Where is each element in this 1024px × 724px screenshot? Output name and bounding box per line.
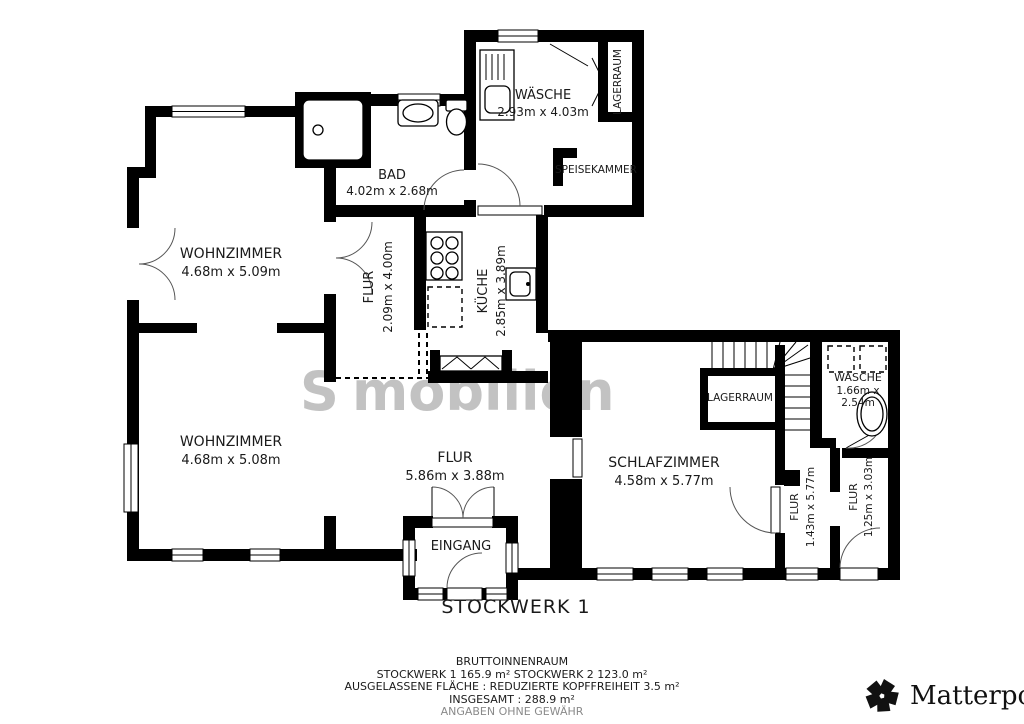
stove (426, 232, 462, 280)
dims-wohnzimmer-1: 4.68m x 5.09m (181, 265, 280, 280)
kitchen-doorway-arc (478, 164, 520, 206)
dims-flur-2: 5.86m x 3.88m (405, 469, 504, 484)
matterport-logo: Matterport® (862, 676, 1024, 716)
laundry-machine-2 (860, 346, 886, 372)
vestibule-door-arc-left (432, 487, 463, 518)
laundry-machine-1 (828, 346, 854, 372)
summary-line-1: BRUTTOINNENRAUM (0, 656, 1024, 669)
floor-title: STOCKWERK 1 (441, 596, 590, 618)
bath-sink (398, 100, 438, 126)
label-eingang: EINGANG (431, 539, 492, 554)
dims-flur-1: 2.09m x 4.00m (381, 241, 395, 333)
label-wohnzimmer-1: WOHNZIMMER (180, 246, 283, 262)
vestibule-door-arc-right (463, 487, 494, 518)
matterport-pinwheel-icon (862, 676, 902, 716)
sliding-door (573, 439, 582, 477)
french-door-arc-top (139, 228, 175, 264)
french-door-arc-bottom (139, 264, 175, 300)
shower (295, 92, 371, 168)
entry-door-arc (447, 553, 482, 588)
dims-flur-3: 1.43m x 5.77m (805, 467, 817, 547)
label-waesche-right: WÄSCHE (834, 371, 882, 384)
label-flur-3: FLUR (788, 493, 801, 521)
bedroom-door-leaf (771, 487, 780, 533)
label-flur-2: FLUR (437, 450, 472, 466)
vestibule-threshold (432, 518, 493, 527)
kitchen-sink (506, 268, 536, 300)
label-waesche-top: WÄSCHE (515, 87, 571, 103)
label-flur-4: FLUR (847, 483, 860, 511)
toilet (446, 100, 467, 135)
label-flur-1: FLUR (362, 271, 377, 304)
kitchen-table (428, 287, 462, 327)
dims-schlafzimmer: 4.58m x 5.77m (614, 474, 713, 489)
hall-door-arc-1 (336, 222, 372, 258)
dims-waesche-right-1: 1.66m x (836, 385, 879, 397)
staircase (712, 342, 810, 430)
label-speisekammer: SPEISEKAMMER (555, 164, 637, 176)
label-bad: BAD (378, 168, 406, 183)
label-lagerraum-mid: LAGERRAUM (707, 392, 773, 404)
dims-flur-4: 1.25m x 3.03m (863, 457, 875, 537)
brand-name: Matterport (910, 681, 1024, 711)
label-kueche: KÜCHE (474, 269, 491, 314)
kitchen-doorway-slab (478, 206, 542, 215)
kitchen-counter (440, 356, 502, 371)
dims-bad: 4.02m x 2.68m (346, 184, 438, 198)
label-wohnzimmer-2: WOHNZIMMER (180, 434, 283, 450)
dims-waesche-top: 2.93m x 4.03m (497, 105, 589, 119)
floorplan-drawing: S mobilien (0, 0, 1024, 724)
dims-waesche-right-2: 2.54m (841, 397, 875, 409)
bedroom-door-arc (730, 487, 776, 533)
laundry-door-leaf (550, 44, 588, 66)
label-schlafzimmer: SCHLAFZIMMER (608, 455, 720, 471)
side-entry-door-slab (840, 568, 878, 580)
label-lagerraum-top: LAGERRAUM (612, 49, 624, 115)
chimney (784, 470, 800, 486)
dims-wohnzimmer-2: 4.68m x 5.08m (181, 453, 280, 468)
dims-kueche: 2.85m x 3.89m (494, 245, 508, 337)
floorplan-page: S mobilien (0, 0, 1024, 724)
